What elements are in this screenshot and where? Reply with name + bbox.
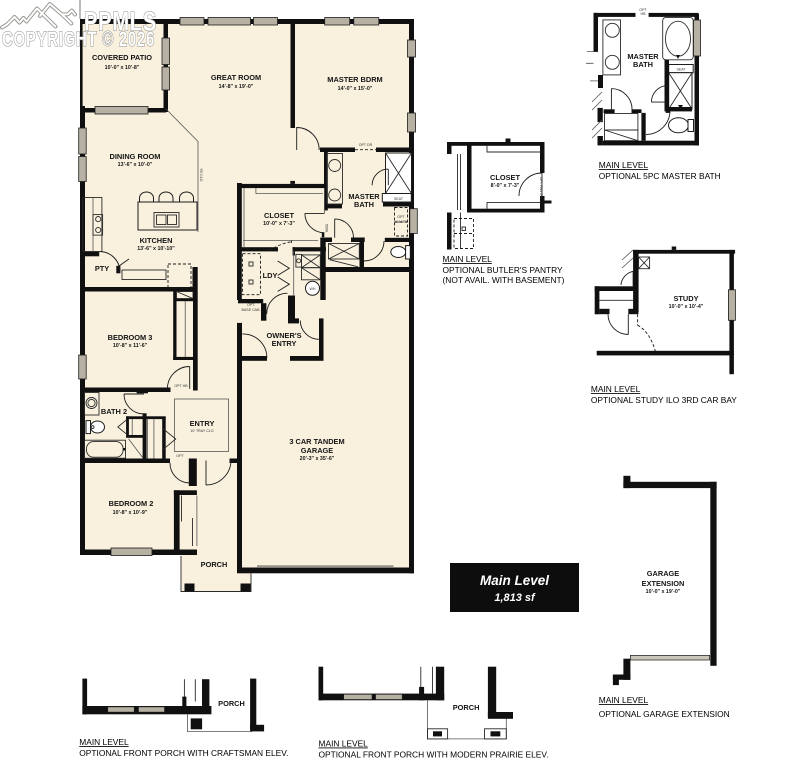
svg-text:BASE CAB.: BASE CAB. [242,308,261,312]
svg-text:10' TRAY CLG: 10' TRAY CLG [190,429,213,433]
svg-text:KITCHEN: KITCHEN [140,236,173,245]
svg-text:13'-6" x 10'-0": 13'-6" x 10'-0" [118,162,153,168]
svg-text:1,813 sf: 1,813 sf [494,592,536,604]
svg-text:STUDY: STUDY [673,294,698,303]
svg-text:BEDROOM 2: BEDROOM 2 [109,499,154,508]
svg-text:(NOT AVAIL. WITH BASEMENT): (NOT AVAIL. WITH BASEMENT) [443,275,565,285]
svg-text:ENTRY: ENTRY [272,339,297,348]
svg-text:MAIN LEVEL: MAIN LEVEL [591,384,641,394]
svg-text:MAIN LEVEL: MAIN LEVEL [79,737,129,747]
svg-text:GARAGE: GARAGE [647,569,680,578]
svg-text:PORCH: PORCH [218,699,245,708]
svg-text:OPTIONAL FRONT PORCH WITH CRAF: OPTIONAL FRONT PORCH WITH CRAFTSMAN ELEV… [79,748,288,758]
svg-text:SEAT: SEAT [394,197,404,201]
svg-text:20'-3" x 35'-6": 20'-3" x 35'-6" [300,456,335,462]
svg-text:LDY: LDY [263,271,278,280]
svg-text:OPT.: OPT. [247,303,255,307]
svg-text:PORCH: PORCH [453,703,480,712]
svg-text:CLOSET: CLOSET [264,211,294,220]
svg-text:14'-0" x 15'-0": 14'-0" x 15'-0" [338,86,373,92]
svg-text:3 CAR TANDEM: 3 CAR TANDEM [289,437,344,446]
svg-text:SEAT: SEAT [676,68,686,72]
svg-text:OPTIONAL GARAGE EXTENSION: OPTIONAL GARAGE EXTENSION [599,709,730,719]
svg-text:VANITY: VANITY [395,220,408,224]
svg-text:OPTIONAL FRONT PORCH WITH MODE: OPTIONAL FRONT PORCH WITH MODERN PRAIRIE… [319,750,549,760]
svg-text:OPTIONAL 5PC MASTER BATH: OPTIONAL 5PC MASTER BATH [599,171,721,181]
svg-text:BEDROOM 3: BEDROOM 3 [108,333,153,342]
svg-text:Main Level: Main Level [480,573,549,588]
svg-text:PORCH: PORCH [201,560,228,569]
svg-text:5068: 5068 [325,224,329,232]
svg-text:MAIN LEVEL: MAIN LEVEL [599,160,649,170]
svg-text:10'-0" x 10'-8": 10'-0" x 10'-8" [105,65,140,71]
svg-text:ENTRY: ENTRY [190,419,215,428]
svg-text:OPT PANTRY: OPT PANTRY [539,177,543,200]
svg-text:BATH: BATH [354,200,374,209]
svg-text:10'-8" x 11'-6": 10'-8" x 11'-6" [113,343,148,349]
svg-text:10'-0" x 10'-4": 10'-0" x 10'-4" [669,304,704,310]
svg-text:GARAGE: GARAGE [301,446,334,455]
svg-text:10'-8" x 10'-9": 10'-8" x 10'-9" [113,510,148,516]
svg-text:13'-6" x 10'-10": 13'-6" x 10'-10" [137,246,175,252]
svg-text:PTY: PTY [95,264,109,273]
svg-text:MAIN LEVEL: MAIN LEVEL [443,254,493,264]
svg-text:WH: WH [310,287,316,291]
svg-text:COPYRIGHT © 2026: COPYRIGHT © 2026 [2,28,155,51]
svg-text:OPT HB: OPT HB [174,384,188,388]
svg-text:OPTIONAL BUTLER'S PANTRY: OPTIONAL BUTLER'S PANTRY [443,265,564,275]
svg-text:14'-8" x 19'-0": 14'-8" x 19'-0" [219,84,254,90]
svg-text:EXTENSION: EXTENSION [642,579,685,588]
svg-text:OPT: OPT [397,215,405,219]
svg-text:8'-0" x 7'-3": 8'-0" x 7'-3" [491,183,520,189]
svg-text:GREAT ROOM: GREAT ROOM [211,73,261,82]
svg-text:HB: HB [641,12,647,16]
svg-text:9'0 CLG: 9'0 CLG [199,168,203,181]
svg-text:DINING ROOM: DINING ROOM [110,152,161,161]
svg-text:MASTER BDRM: MASTER BDRM [327,75,382,84]
svg-text:10'-0" x 19'-0": 10'-0" x 19'-0" [646,589,681,595]
svg-text:CLOSET: CLOSET [490,173,520,182]
svg-text:BATH 2: BATH 2 [101,407,127,416]
svg-text:OPT DR: OPT DR [359,143,373,147]
svg-text:COVERED PATIO: COVERED PATIO [92,53,152,62]
svg-text:MAIN LEVEL: MAIN LEVEL [599,695,649,705]
svg-text:OPTIONAL STUDY ILO 3RD CAR BAY: OPTIONAL STUDY ILO 3RD CAR BAY [591,395,737,405]
svg-text:BATH: BATH [633,60,653,69]
svg-text:10'-0" x 7'-3": 10'-0" x 7'-3" [263,221,295,227]
svg-text:MAIN LEVEL: MAIN LEVEL [319,739,369,749]
svg-text:OPT: OPT [176,454,184,458]
